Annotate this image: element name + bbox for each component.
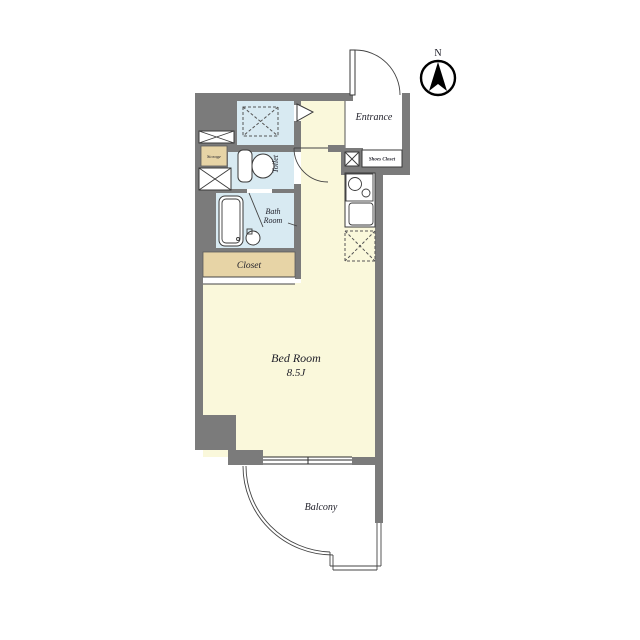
- wall-notch-block: [195, 415, 236, 450]
- wall-entrance-right: [402, 93, 410, 175]
- kitchen-counter: [345, 173, 375, 227]
- bathtub: [219, 196, 243, 246]
- wall-right: [375, 175, 383, 457]
- closet-label: Closet: [237, 261, 262, 271]
- wall-wash-toilet-divider: [228, 145, 294, 152]
- wall-bath-top-right: [272, 189, 294, 193]
- floor-plan-drawing: N Entrance Shoes Closet Storage Toilet B…: [0, 0, 640, 640]
- entrance-label: Entrance: [355, 112, 393, 123]
- bath-room-label-line2: Room: [263, 216, 283, 225]
- toilet-tank: [238, 150, 252, 182]
- shoes-closet-label: Shoes Closet: [369, 158, 396, 163]
- entrance-door: [350, 50, 400, 95]
- wall-balcony-right: [375, 457, 383, 523]
- bedroom-window: [263, 457, 352, 465]
- entrance-door-leaf: [350, 50, 355, 95]
- bedroom-size-label: 8.5J: [287, 367, 307, 379]
- wall-bottom-right: [352, 457, 383, 465]
- crossed-box-top: [199, 131, 234, 143]
- wall-bath-left-thick: [195, 193, 216, 250]
- washing-room-floor: [237, 101, 294, 145]
- wall-bottom-left: [235, 457, 263, 465]
- balcony-rails: [243, 466, 381, 570]
- entrance-door-swing: [355, 50, 400, 95]
- crossed-box-bottom: [199, 168, 231, 190]
- compass: N: [421, 48, 455, 95]
- wall-top: [195, 93, 353, 101]
- bath-room-label-line1: Bath: [265, 207, 280, 216]
- toilet-label: Toilet: [271, 154, 280, 173]
- storage-label: Storage: [207, 154, 221, 159]
- bedroom-label: Bed Room: [271, 351, 321, 365]
- floor-plan-page: N Entrance Shoes Closet Storage Toilet B…: [0, 0, 640, 640]
- wall-bath-bottom: [195, 248, 301, 252]
- closet-door-strip: [203, 277, 295, 284]
- balcony-label: Balcony: [305, 502, 338, 513]
- wall-wet-right-b: [294, 121, 301, 152]
- compass-north-label: N: [434, 48, 441, 59]
